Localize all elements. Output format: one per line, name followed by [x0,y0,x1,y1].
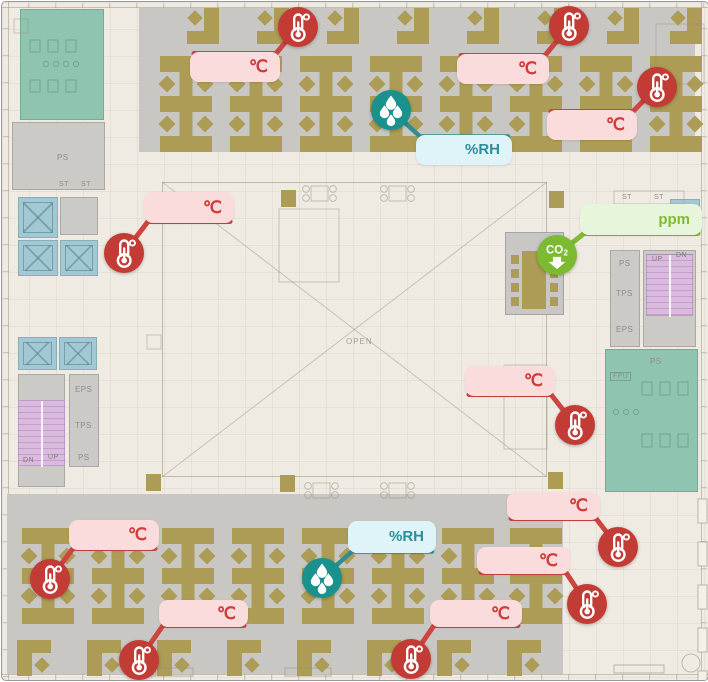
temperature-sensor-marker[interactable] [637,67,677,107]
temperature-sensor-marker[interactable] [104,233,144,273]
temperature-sensor-marker[interactable] [555,405,595,445]
humidity-icon [371,90,411,130]
temperature-sensor-marker[interactable] [549,6,589,46]
temperature-sensor-marker[interactable] [278,7,318,47]
temperature-sensor-marker[interactable] [391,639,431,679]
thermometer-icon [567,584,607,624]
humidity-icon [302,558,342,598]
temperature-sensor-marker[interactable] [598,527,638,567]
thermometer-icon [391,639,431,679]
co2-icon: CO 2 [537,235,577,275]
svg-text:2: 2 [564,249,569,258]
temperature-unit-label[interactable]: ℃ [69,520,159,550]
thermometer-icon [30,559,70,599]
temperature-unit-label[interactable]: ℃ [477,547,570,574]
temperature-unit-label[interactable]: ℃ [507,492,600,520]
temperature-unit-label[interactable]: ℃ [190,52,280,82]
temperature-sensor-marker[interactable] [119,640,159,680]
thermometer-icon [555,405,595,445]
co2-sensor-marker[interactable]: CO 2 [537,235,577,275]
thermometer-icon [104,233,144,273]
temperature-sensor-marker[interactable] [30,559,70,599]
thermometer-icon [637,67,677,107]
thermometer-icon [119,640,159,680]
floorplan-canvas: PS ST ST DN UP EPS TPS PS OPEN ST ST PS … [1,1,708,681]
sensor-layer: ℃ ℃ ℃ %RH ppm CO 2 ℃ ℃ ℃ ℃ %RH ℃ ℃ ℃ [2,2,708,680]
humidity-sensor-marker[interactable] [371,90,411,130]
thermometer-icon [549,6,589,46]
svg-text:CO: CO [546,245,563,257]
temperature-unit-label[interactable]: ℃ [547,110,637,140]
temperature-unit-label[interactable]: ℃ [159,600,248,627]
temperature-unit-label[interactable]: ℃ [144,192,234,223]
temperature-unit-label[interactable]: ℃ [457,54,549,84]
temperature-unit-label[interactable]: ℃ [465,366,555,396]
humidity-unit-label[interactable]: %RH [416,135,512,165]
co2-unit-label[interactable]: ppm [580,204,702,235]
temperature-unit-label[interactable]: ℃ [430,600,522,627]
humidity-unit-label[interactable]: %RH [348,521,436,553]
humidity-sensor-marker[interactable] [302,558,342,598]
thermometer-icon [598,527,638,567]
temperature-sensor-marker[interactable] [567,584,607,624]
thermometer-icon [278,7,318,47]
